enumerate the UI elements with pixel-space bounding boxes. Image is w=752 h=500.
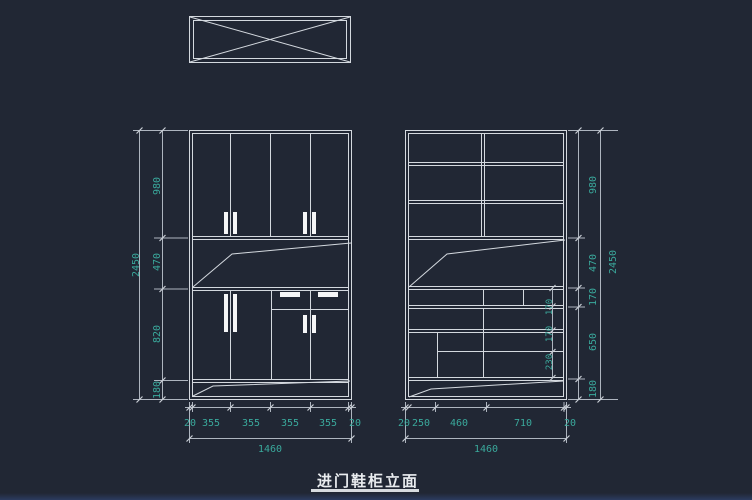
shoe-cabinet-elevation-drawing: 2450 980 470 820 180 20 355 355 355 355 … [0,0,752,500]
door-handle [312,212,316,234]
dimension-ticks [137,128,604,442]
drawing-title: 进门鞋柜立面 [317,472,419,490]
dim-label: 355 [242,418,260,429]
dim-label: 470 [152,253,163,271]
right-elevation-outline [406,131,567,400]
door-handle [303,212,307,234]
dim-label: 180 [152,381,163,399]
dim-label: 20 [184,418,196,429]
cabinet-top-plan-view [190,17,351,63]
cad-viewport: 2450 980 470 820 180 20 355 355 355 355 … [0,0,752,500]
dim-label: 20 [564,418,576,429]
dim-label: 230 [545,354,555,370]
left-cabinet-dimensions: 2450 980 470 820 180 20 355 355 355 355 … [131,177,361,455]
dim-label: 180 [588,380,599,398]
drawer-handle [318,292,338,297]
left-elevation-outline [190,131,352,400]
door-handle [303,315,307,333]
dim-label: 170 [545,326,555,342]
title-underline [311,489,419,492]
drawer-handle [280,292,300,297]
dim-label: 650 [588,333,599,351]
dim-label: 170 [588,288,599,306]
door-handle [224,212,228,234]
door-handle [233,294,237,332]
dim-label: 1460 [258,444,282,455]
dim-label: 20 [398,418,410,429]
dim-label: 355 [319,418,337,429]
dim-label: 980 [588,176,599,194]
dim-label: 2450 [608,250,619,274]
bottom-edge-strip [0,493,752,500]
dim-label: 20 [349,418,361,429]
dim-label: 1460 [474,444,498,455]
door-handle [312,315,316,333]
dim-label: 250 [412,418,430,429]
dim-label: 170 [545,299,555,315]
dim-label: 460 [450,418,468,429]
dim-label: 355 [281,418,299,429]
left-elevation-handles [224,212,338,333]
right-cabinet-dimensions: 2450 980 470 170 650 180 170 170 230 20 … [398,176,619,455]
door-handle [224,294,228,332]
dim-label: 470 [588,254,599,272]
dim-label: 710 [514,418,532,429]
dim-label: 820 [152,325,163,343]
door-handle [233,212,237,234]
dim-label: 355 [202,418,220,429]
dim-label: 980 [152,177,163,195]
dim-label: 2450 [131,253,142,277]
